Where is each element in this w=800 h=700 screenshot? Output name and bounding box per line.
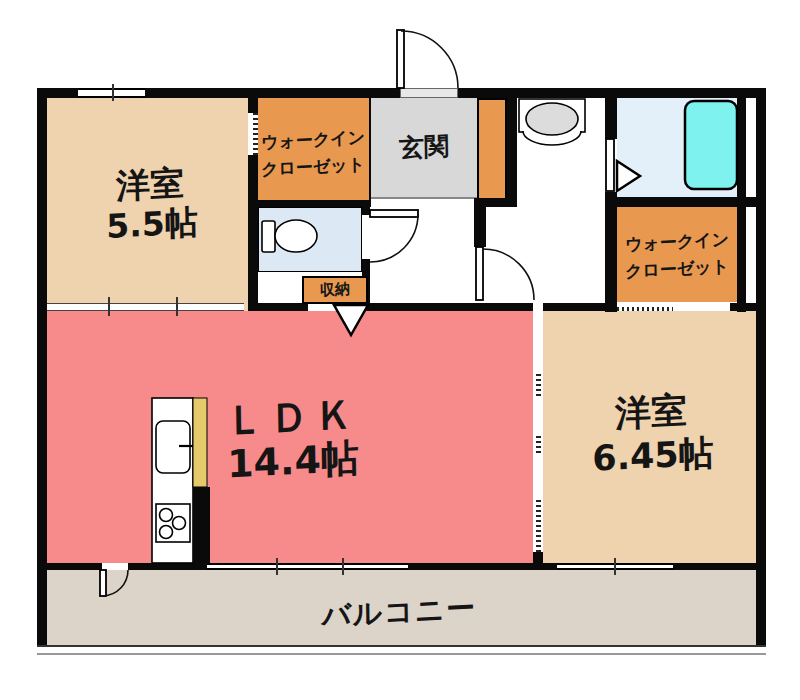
toilet-door-arc — [370, 214, 418, 262]
bathtub-icon — [685, 101, 737, 189]
entrance-door-leaf — [397, 30, 404, 88]
toilet-bowl-icon — [275, 220, 317, 252]
washbasin-bowl-icon — [526, 103, 578, 135]
balcony-door-leaf — [100, 570, 106, 596]
stove-burner-icon — [160, 509, 173, 522]
bathroom-door-leaf — [606, 139, 614, 191]
bedroom-right-size: 6.45帖 — [592, 435, 714, 476]
ldk-size: 14.4帖 — [227, 439, 359, 484]
washroom-door-arc — [483, 249, 534, 300]
bathroom-door-icon — [617, 161, 640, 191]
ldk-label: ＬＤＫ — [225, 393, 360, 440]
bedroom-right-label: 洋室 — [615, 392, 688, 432]
floor-plan: 洋室 5.5帖 ウォークイン クローゼット 玄関 収納 ＬＤＫ 14.4帖 洋室… — [0, 0, 800, 700]
entrance-door-arc — [401, 31, 458, 88]
bedroom-top-label: 洋室 — [116, 165, 185, 203]
ldk-entry-icon — [334, 305, 368, 335]
washroom-door-leaf — [476, 247, 483, 300]
balcony-label: バルコニー — [321, 593, 476, 630]
bedroom-top-size: 5.5帖 — [106, 205, 198, 243]
stove-burner-icon — [173, 517, 186, 530]
genkan-label: 玄関 — [399, 133, 449, 161]
kitchen-wall-stub — [193, 487, 210, 563]
toilet-tank-icon — [262, 221, 275, 252]
toilet-door-leaf — [370, 210, 418, 217]
stove-burner-icon — [160, 526, 173, 539]
kitchen-counter-edge — [193, 398, 207, 487]
storage-label: 収納 — [320, 282, 350, 299]
